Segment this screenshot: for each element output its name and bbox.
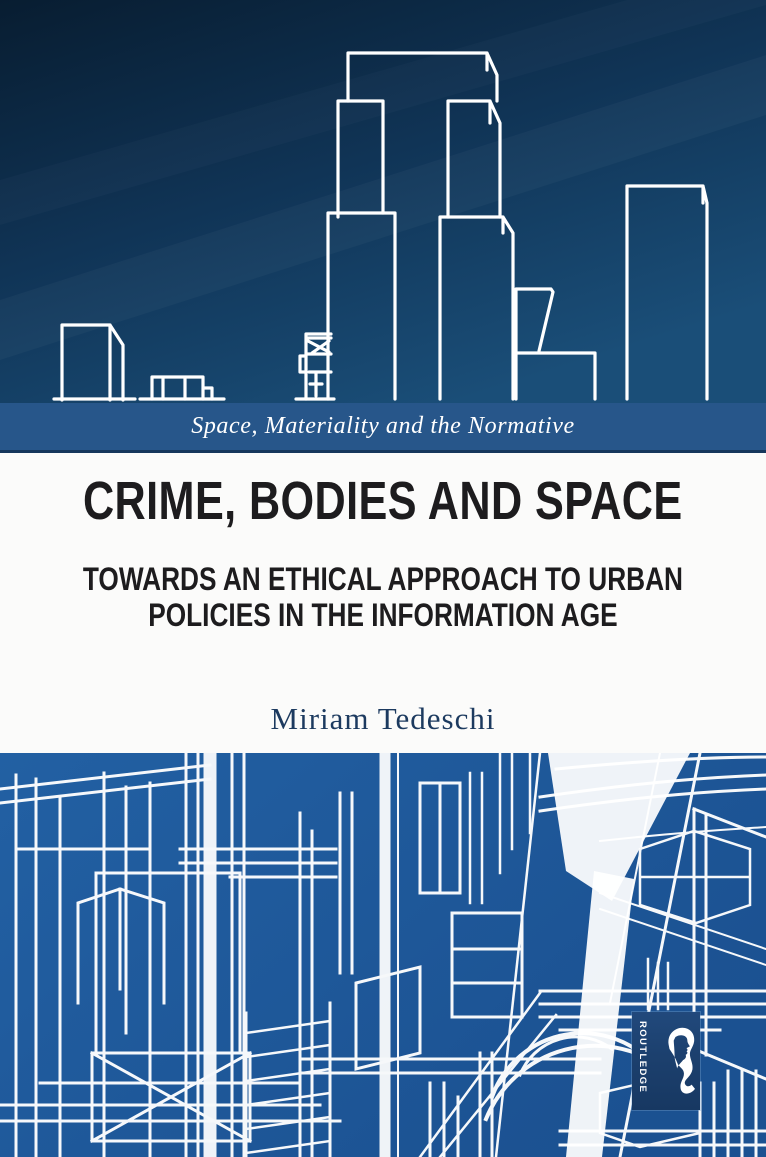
- routledge-r-icon: [661, 1023, 695, 1097]
- book-title: CRIME, BODIES AND SPACE: [0, 472, 766, 530]
- book-cover: Space, Materiality and the Normative CRI…: [0, 0, 766, 1157]
- subtitle-line-1: TOWARDS AN ETHICAL APPROACH TO URBAN: [83, 561, 683, 597]
- series-banner: Space, Materiality and the Normative: [0, 403, 766, 453]
- series-title: Space, Materiality and the Normative: [0, 403, 766, 450]
- author-name: Miriam Tedeschi: [0, 700, 766, 738]
- skyline-section: [0, 0, 766, 403]
- routledge-wordmark: ROUTLEDGE: [637, 1021, 648, 1093]
- routledge-logo: ROUTLEDGE: [632, 1012, 700, 1110]
- subtitle-line-2: POLICIES IN THE INFORMATION AGE: [148, 597, 617, 633]
- book-subtitle: TOWARDS AN ETHICAL APPROACH TO URBANPOLI…: [0, 561, 766, 633]
- city-skyline-illustration: [0, 0, 766, 403]
